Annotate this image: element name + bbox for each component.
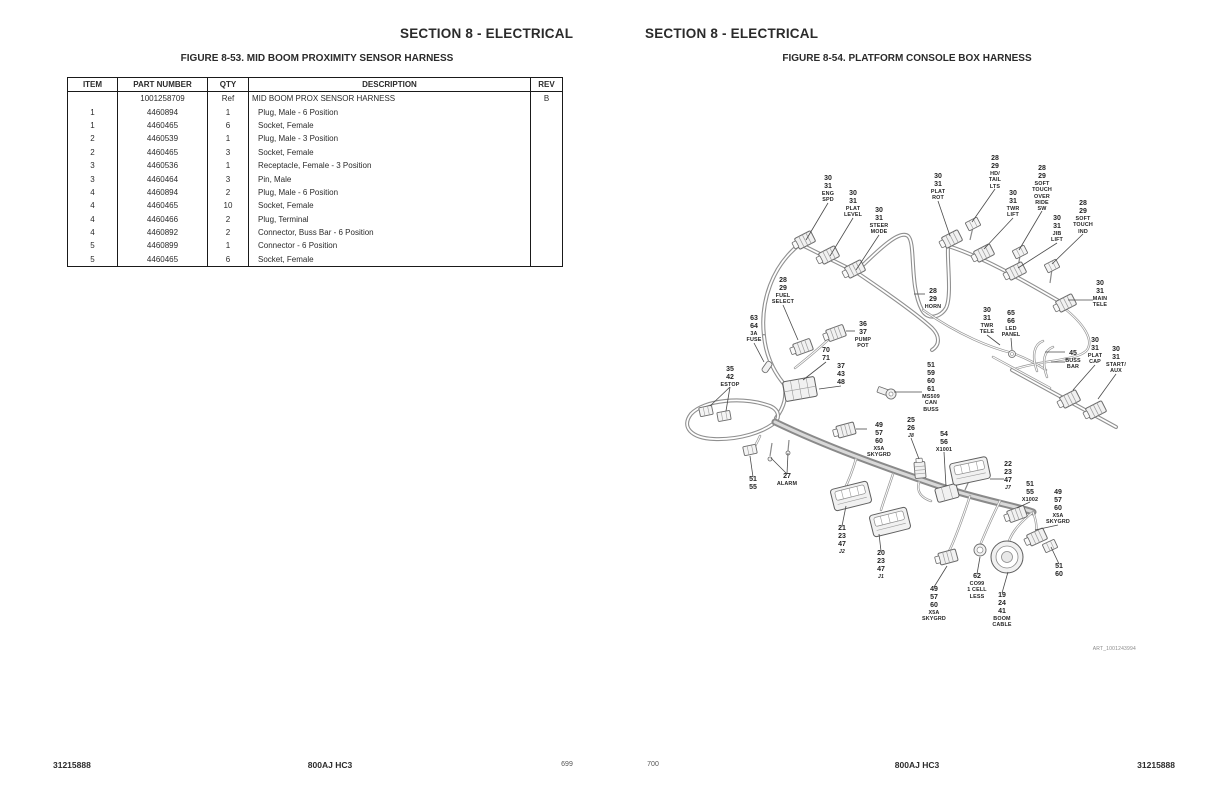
table-cell: 6 <box>208 119 249 132</box>
callout-line: 64 <box>747 323 762 331</box>
callout-start-aux: 3031START/AUX <box>1106 346 1126 375</box>
callout-line: TOUCH <box>1073 222 1093 228</box>
callout-line: LESS <box>967 594 986 600</box>
callout-x5a-skygrd-right: 495760X5ASKYGRD <box>1046 489 1070 526</box>
callout-boom-cable: 192441BOOMCABLE <box>992 592 1011 629</box>
callout-conn-37-43-48: 374348 <box>837 363 845 387</box>
table-cell: 5 <box>68 239 118 252</box>
callout-line: 47 <box>1004 477 1012 485</box>
table-row: 4446046510Socket, Female <box>68 199 563 212</box>
table-cell: 4460465 <box>118 119 208 132</box>
footer-page-number-right: 700 <box>636 761 670 768</box>
callout-line: 54 <box>936 431 952 439</box>
table-row: 144608941Plug, Male - 6 Position <box>68 105 563 118</box>
callout-line: 55 <box>1022 489 1038 497</box>
table-cell: 1 <box>208 132 249 145</box>
table-cell: 3 <box>208 146 249 159</box>
callout-line: 21 <box>838 525 846 533</box>
callout-line: 24 <box>992 600 1011 608</box>
section-header-right: SECTION 8 - ELECTRICAL <box>645 26 818 41</box>
callout-line: 31 <box>931 181 945 189</box>
callout-line: 30 <box>980 307 994 315</box>
table-cell: Connector - 6 Position <box>249 239 531 252</box>
callout-line: LIFT <box>1051 237 1063 243</box>
callout-line: CABLE <box>992 622 1011 628</box>
callout-plat-cap: 3031PLATCAP <box>1088 337 1102 366</box>
footer-page-number-left: 699 <box>550 761 584 768</box>
callout-line: 61 <box>922 386 940 394</box>
table-cell <box>531 172 563 185</box>
callout-line: 30 <box>931 173 945 181</box>
callout-line: 31 <box>844 198 862 206</box>
callout-line: 65 <box>1002 310 1021 318</box>
callout-line: 29 <box>772 285 794 293</box>
callout-line: 23 <box>838 533 846 541</box>
callout-line: SELECT <box>772 299 794 305</box>
callout-j2: 212347J2 <box>838 525 846 555</box>
callout-line: 31 <box>870 215 889 223</box>
table-cell: 1 <box>208 105 249 118</box>
callout-j8: 2526J8 <box>907 417 915 439</box>
table-cell: 4 <box>68 186 118 199</box>
harness-diagram: 3031ENGSPD3031PLATLEVEL3031STEERMODE3031… <box>660 140 1140 670</box>
callout-line: 49 <box>867 422 891 430</box>
callout-line: TAIL <box>989 177 1001 183</box>
figure-caption-8-53: FIGURE 8-53. MID BOOM PROXIMITY SENSOR H… <box>67 53 567 64</box>
callout-line: 27 <box>777 473 797 481</box>
callout-line: 51 <box>922 362 940 370</box>
callout-labels-layer: 3031ENGSPD3031PLATLEVEL3031STEERMODE3031… <box>660 140 1140 670</box>
table-cell: Plug, Male - 3 Position <box>249 132 531 145</box>
callout-line: FUSE <box>747 337 762 343</box>
callout-line: 63 <box>747 315 762 323</box>
callout-j7: 222347J7 <box>1004 461 1012 491</box>
table-cell: 1001258709 <box>118 92 208 106</box>
callout-line: OVER <box>1032 194 1052 200</box>
callout-line: IND <box>1073 229 1093 235</box>
callout-line: 57 <box>922 594 946 602</box>
callout-line: 30 <box>1007 190 1020 198</box>
table-cell <box>531 239 563 252</box>
callout-co99-1cell-less: 62CO991 CELLLESS <box>967 573 986 600</box>
callout-line: 30 <box>844 190 862 198</box>
table-cell: Ref <box>208 92 249 106</box>
table-cell: 4460465 <box>118 253 208 267</box>
callout-x5a-skygrd-lower: 495760X5ASKYGRD <box>922 586 946 623</box>
callout-line: BUSS <box>922 407 940 413</box>
table-cell: Plug, Male - 6 Position <box>249 105 531 118</box>
table-cell: 10 <box>208 199 249 212</box>
table-cell: 5 <box>68 253 118 267</box>
table-cell: 4460892 <box>118 226 208 239</box>
section-header-left: SECTION 8 - ELECTRICAL <box>400 26 573 41</box>
table-cell: 4460894 <box>118 186 208 199</box>
figure-caption-8-54: FIGURE 8-54. PLATFORM CONSOLE BOX HARNES… <box>657 53 1157 64</box>
callout-line: 28 <box>1032 165 1052 173</box>
column-header-part-number: PART NUMBER <box>118 78 208 92</box>
callout-ms509-can-buss: 51596061MS509CANBUSS <box>922 362 940 413</box>
table-cell: 3 <box>208 172 249 185</box>
callout-line: LIFT <box>1007 212 1020 218</box>
table-cell: 1 <box>208 159 249 172</box>
callout-twr-lift: 3031TWRLIFT <box>1007 190 1020 219</box>
parts-table-header: ITEMPART NUMBERQTYDESCRIPTIONREV <box>68 78 563 92</box>
callout-conn-51-55: 5155 <box>749 476 757 492</box>
table-cell: Socket, Female <box>249 253 531 267</box>
callout-line: 62 <box>967 573 986 581</box>
callout-line: 23 <box>1004 469 1012 477</box>
callout-line: 30 <box>1106 346 1126 354</box>
callout-line: 37 <box>855 329 871 337</box>
callout-main-tele: 3031MAINTELE <box>1093 280 1107 309</box>
table-row: 244605391Plug, Male - 3 Position <box>68 132 563 145</box>
callout-jib-lift: 3031JIBLIFT <box>1051 215 1063 244</box>
callout-line: 57 <box>1046 497 1070 505</box>
callout-line: LTS <box>989 184 1001 190</box>
table-row: 444608942Plug, Male - 6 Position <box>68 186 563 199</box>
callout-line: 55 <box>749 484 757 492</box>
callout-line: CAP <box>1088 359 1102 365</box>
callout-line: 30 <box>1051 215 1063 223</box>
callout-pump-pot: 3637PUMPPOT <box>855 321 871 350</box>
callout-line: 70 <box>822 347 830 355</box>
callout-line: SKYGRD <box>922 616 946 622</box>
table-row: 544604656Socket, Female <box>68 253 563 267</box>
callout-line: PANEL <box>1002 332 1021 338</box>
callout-line: 23 <box>877 558 885 566</box>
callout-line: 41 <box>992 608 1011 616</box>
parts-table: ITEMPART NUMBERQTYDESCRIPTIONREV 1001258… <box>67 77 563 267</box>
table-cell: 1 <box>68 119 118 132</box>
callout-line: 60 <box>867 438 891 446</box>
callout-led-panel: 6566LEDPANEL <box>1002 310 1021 339</box>
callout-line: 49 <box>922 586 946 594</box>
callout-x1001: 5456X1001 <box>936 431 952 453</box>
callout-line: 30 <box>1088 337 1102 345</box>
callout-line: 57 <box>867 430 891 438</box>
table-cell <box>531 146 563 159</box>
callout-line: 56 <box>936 439 952 447</box>
table-cell: 4 <box>68 213 118 226</box>
table-cell: 4460466 <box>118 213 208 226</box>
table-cell <box>531 186 563 199</box>
callout-line: ALARM <box>777 481 797 487</box>
callout-line: AUX <box>1106 368 1126 374</box>
callout-line: 28 <box>1073 200 1093 208</box>
table-cell <box>68 92 118 106</box>
table-row: 1001258709RefMID BOOM PROX SENSOR HARNES… <box>68 92 563 106</box>
callout-line: J7 <box>1004 485 1012 491</box>
table-row: 144604656Socket, Female <box>68 119 563 132</box>
table-cell: 4 <box>68 226 118 239</box>
callout-fuse-3a: 63643AFUSE <box>747 315 762 344</box>
callout-line: 29 <box>1032 173 1052 181</box>
footer-model-left: 800AJ HC3 <box>230 760 430 770</box>
callout-line: 49 <box>1046 489 1070 497</box>
callout-alarm: 27ALARM <box>777 473 797 487</box>
table-row: 344605361Receptacle, Female - 3 Position <box>68 159 563 172</box>
column-header-item: ITEM <box>68 78 118 92</box>
callout-line: ESTOP <box>721 382 740 388</box>
callout-line: 31 <box>822 183 834 191</box>
callout-line: ROT <box>931 195 945 201</box>
callout-line: 31 <box>980 315 994 323</box>
callout-line: 30 <box>822 175 834 183</box>
callout-line: 31 <box>1007 198 1020 206</box>
table-cell: 4460536 <box>118 159 208 172</box>
callout-line: X1002 <box>1022 497 1038 503</box>
callout-line: 60 <box>922 602 946 610</box>
callout-line: 60 <box>1055 571 1063 579</box>
callout-line: 37 <box>837 363 845 371</box>
callout-line: 66 <box>1002 318 1021 326</box>
callout-line: X1001 <box>936 447 952 453</box>
callout-line: 60 <box>922 378 940 386</box>
callout-hd-tail-lts: 2829HD/TAILLTS <box>989 155 1001 190</box>
callout-line: 28 <box>772 277 794 285</box>
table-row: 444604662Plug, Terminal <box>68 213 563 226</box>
callout-fuel-select: 2829FUELSELECT <box>772 277 794 306</box>
callout-line: 29 <box>989 163 1001 171</box>
callout-line: BAR <box>1065 364 1081 370</box>
table-cell: Plug, Terminal <box>249 213 531 226</box>
table-cell <box>531 105 563 118</box>
footer-doc-number-left: 31215888 <box>53 760 91 770</box>
callout-line: SKYGRD <box>1046 519 1070 525</box>
table-cell: 3 <box>68 172 118 185</box>
table-cell <box>531 199 563 212</box>
table-cell: 4460539 <box>118 132 208 145</box>
table-cell <box>531 119 563 132</box>
callout-eng-spd: 3031ENGSPD <box>822 175 834 204</box>
callout-line: 43 <box>837 371 845 379</box>
callout-horn: 2829HORN <box>925 288 941 310</box>
manual-two-page-spread: SECTION 8 - ELECTRICAL FIGURE 8-53. MID … <box>0 0 1224 792</box>
callout-line: MODE <box>870 229 889 235</box>
callout-soft-touch-ind: 2829SOFTTOUCHIND <box>1073 200 1093 235</box>
callout-line: 20 <box>877 550 885 558</box>
table-cell: Plug, Male - 6 Position <box>249 186 531 199</box>
callout-line: 26 <box>907 425 915 433</box>
table-cell: Receptacle, Female - 3 Position <box>249 159 531 172</box>
table-row: 444608922Connector, Buss Bar - 6 Positio… <box>68 226 563 239</box>
callout-estop: 3542ESTOP <box>721 366 740 388</box>
table-cell: 2 <box>208 226 249 239</box>
callout-plat-rot: 3031PLATROT <box>931 173 945 202</box>
callout-line: 45 <box>1065 350 1081 358</box>
callout-line: 22 <box>1004 461 1012 469</box>
callout-x1002: 5155X1002 <box>1022 481 1038 503</box>
callout-line: 28 <box>925 288 941 296</box>
callout-line: LEVEL <box>844 212 862 218</box>
table-cell: Socket, Female <box>249 119 531 132</box>
table-cell <box>531 226 563 239</box>
table-cell: 6 <box>208 253 249 267</box>
column-header-description: DESCRIPTION <box>249 78 531 92</box>
callout-steer-mode: 3031STEERMODE <box>870 207 889 236</box>
callout-line: 71 <box>822 355 830 363</box>
callout-line: 36 <box>855 321 871 329</box>
callout-line: 47 <box>838 541 846 549</box>
callout-line: 60 <box>1046 505 1070 513</box>
callout-line: 30 <box>1093 280 1107 288</box>
table-cell <box>531 253 563 267</box>
table-cell: 2 <box>208 186 249 199</box>
table-cell: Socket, Female <box>249 146 531 159</box>
callout-soft-touch-override-sw: 2829SOFTTOUCHOVERRIDESW <box>1032 165 1052 212</box>
table-cell: 4460465 <box>118 199 208 212</box>
callout-j1: 202347J1 <box>877 550 885 580</box>
callout-line: 29 <box>925 296 941 304</box>
callout-conn-70-71: 7071 <box>822 347 830 363</box>
callout-line: SW <box>1032 206 1052 212</box>
callout-line: TELE <box>980 329 994 335</box>
table-cell: 4460465 <box>118 146 208 159</box>
callout-twr-tele: 3031TWRTELE <box>980 307 994 336</box>
table-row: 344604643Pin, Male <box>68 172 563 185</box>
art-number: ART_1001243994 <box>1093 646 1136 652</box>
callout-line: 31 <box>1106 354 1126 362</box>
callout-line: 31 <box>1093 288 1107 296</box>
table-cell: 4460464 <box>118 172 208 185</box>
table-cell: 2 <box>68 146 118 159</box>
table-row: 544608991Connector - 6 Position <box>68 239 563 252</box>
callout-line: 29 <box>1073 208 1093 216</box>
callout-line: SPD <box>822 197 834 203</box>
table-cell: 1 <box>208 239 249 252</box>
callout-line: J8 <box>907 433 915 439</box>
callout-line: 30 <box>870 207 889 215</box>
callout-line: 48 <box>837 379 845 387</box>
table-cell: 2 <box>208 213 249 226</box>
callout-line: 28 <box>989 155 1001 163</box>
table-cell <box>531 159 563 172</box>
callout-line: 51 <box>1022 481 1038 489</box>
callout-conn-51-60: 5160 <box>1055 563 1063 579</box>
callout-line: HORN <box>925 304 941 310</box>
callout-line: 25 <box>907 417 915 425</box>
column-header-qty: QTY <box>208 78 249 92</box>
callout-line: TOUCH <box>1032 187 1052 193</box>
table-cell: Connector, Buss Bar - 6 Position <box>249 226 531 239</box>
callout-line: 42 <box>721 374 740 382</box>
callout-line: J1 <box>877 574 885 580</box>
column-header-rev: REV <box>531 78 563 92</box>
callout-plat-level: 3031PLATLEVEL <box>844 190 862 219</box>
callout-line: 19 <box>992 592 1011 600</box>
callout-line: 31 <box>1051 223 1063 231</box>
callout-line: 35 <box>721 366 740 374</box>
callout-buss-bar: 45BUSSBAR <box>1065 350 1081 371</box>
table-cell: 4460899 <box>118 239 208 252</box>
table-cell: 2 <box>68 132 118 145</box>
callout-line: SKYGRD <box>867 452 891 458</box>
callout-x5a-skygrd-upper: 495760X5ASKYGRD <box>867 422 891 459</box>
callout-line: 1 CELL <box>967 587 986 593</box>
table-cell: MID BOOM PROX SENSOR HARNESS <box>249 92 531 106</box>
table-row: 244604653Socket, Female <box>68 146 563 159</box>
table-cell <box>531 213 563 226</box>
callout-line: 51 <box>749 476 757 484</box>
callout-line: 31 <box>1088 345 1102 353</box>
callout-line: J2 <box>838 549 846 555</box>
table-cell: 4 <box>68 199 118 212</box>
callout-line: 59 <box>922 370 940 378</box>
callout-line: POT <box>855 343 871 349</box>
table-cell: Socket, Female <box>249 199 531 212</box>
table-cell: Pin, Male <box>249 172 531 185</box>
table-cell <box>531 132 563 145</box>
footer-model-right: 800AJ HC3 <box>817 760 1017 770</box>
callout-line: 51 <box>1055 563 1063 571</box>
table-cell: 4460894 <box>118 105 208 118</box>
table-cell: 1 <box>68 105 118 118</box>
callout-line: TELE <box>1093 302 1107 308</box>
callout-line: 47 <box>877 566 885 574</box>
table-cell: B <box>531 92 563 106</box>
table-cell: 3 <box>68 159 118 172</box>
footer-doc-number-right: 31215888 <box>1095 760 1175 770</box>
